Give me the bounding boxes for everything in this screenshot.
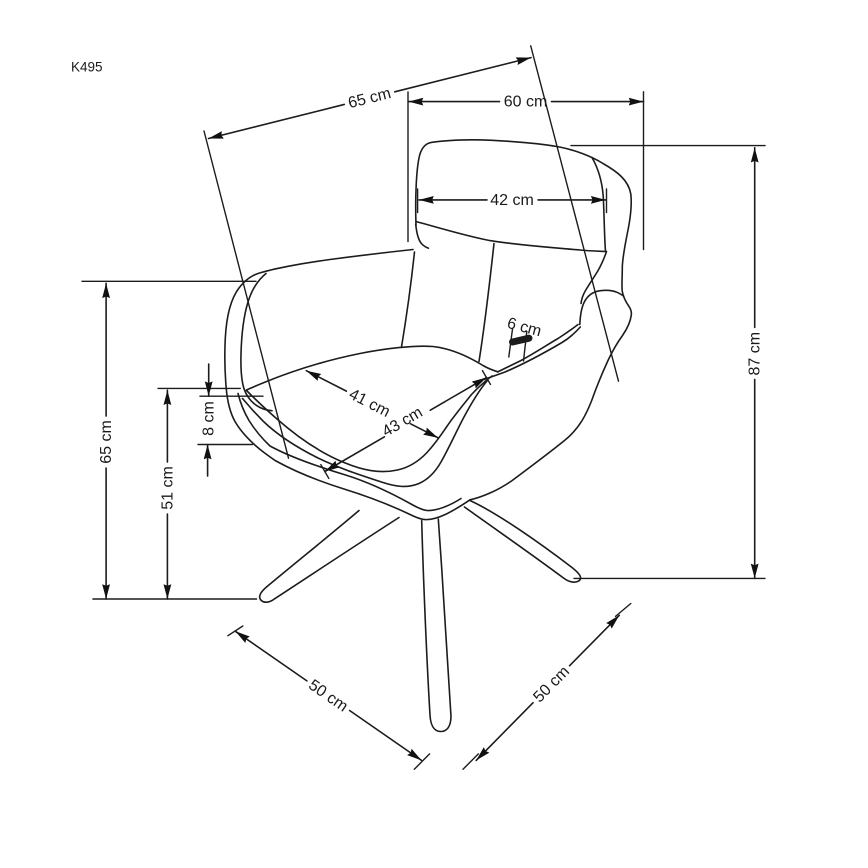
svg-text:42 cm: 42 cm [490, 192, 534, 209]
svg-text:60 cm: 60 cm [504, 94, 548, 111]
svg-text:65 cm: 65 cm [346, 85, 392, 112]
svg-text:8 cm: 8 cm [201, 401, 218, 436]
svg-text:41 cm: 41 cm [346, 386, 393, 421]
svg-text:50 cm: 50 cm [530, 663, 573, 706]
svg-text:K495: K495 [71, 60, 103, 75]
svg-text:51 cm: 51 cm [159, 466, 176, 510]
svg-text:50 cm: 50 cm [305, 677, 350, 716]
svg-text:87 cm: 87 cm [747, 332, 764, 376]
svg-text:65 cm: 65 cm [98, 420, 115, 464]
